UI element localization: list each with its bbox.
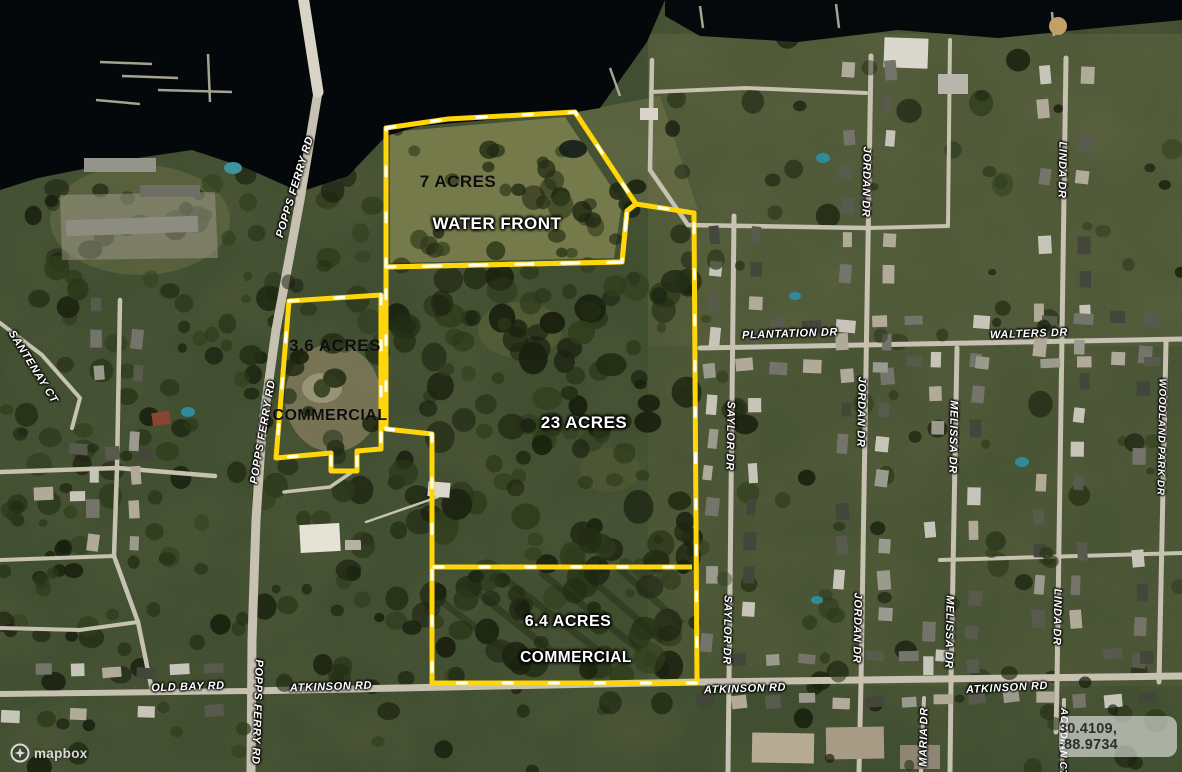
parcel-label-7-acres: 7 ACRES (420, 172, 497, 192)
parcel-label-23-acres: 23 ACRES (541, 413, 628, 433)
parcel-label-commercial-south: COMMERCIAL (520, 649, 632, 667)
road-label-melissa-dr-south: MELISSA DR (942, 595, 955, 669)
parcel-label-6-4-acres: 6.4 ACRES (525, 613, 612, 631)
road-label-maria-dr: MARIA DR (917, 707, 930, 767)
road-label-melissa-dr-north: MELISSA DR (946, 400, 959, 474)
road-label-jordan-dr-south: JORDAN DR (850, 593, 863, 664)
road-label-jordan-dr-mid: JORDAN DR (854, 377, 867, 448)
satellite-map[interactable]: 7 ACRES WATER FRONT 3.6 ACRES COMMERCIAL… (0, 0, 1182, 772)
road-label-linda-dr-south: LINDA DR (1051, 588, 1064, 645)
road-label-woodland-park-dr: WOODLAND PARK DR (1154, 378, 1167, 495)
parcel-label-3-6-acres: 3.6 ACRES (289, 336, 381, 356)
road-label-linda-dr-north: LINDA DR (1056, 141, 1069, 198)
mapbox-icon (10, 743, 30, 763)
road-label-jordan-dr-north: JORDAN DR (859, 147, 872, 218)
mapbox-logo[interactable]: mapbox (10, 743, 88, 763)
road-label-old-bay-rd: OLD BAY RD (151, 680, 225, 695)
parcel-label-commercial-west: COMMERCIAL (272, 407, 387, 425)
parcel-label-water-front: WATER FRONT (433, 214, 562, 234)
road-label-saylor-dr-north: SAYLOR DR (723, 401, 736, 471)
coordinates-value: 30.4109, -88.9734 (1059, 721, 1177, 753)
coordinates-badge: 30.4109, -88.9734 (1059, 716, 1177, 757)
mapbox-wordmark: mapbox (34, 746, 88, 761)
road-label-saylor-dr-south: SAYLOR DR (720, 595, 733, 665)
